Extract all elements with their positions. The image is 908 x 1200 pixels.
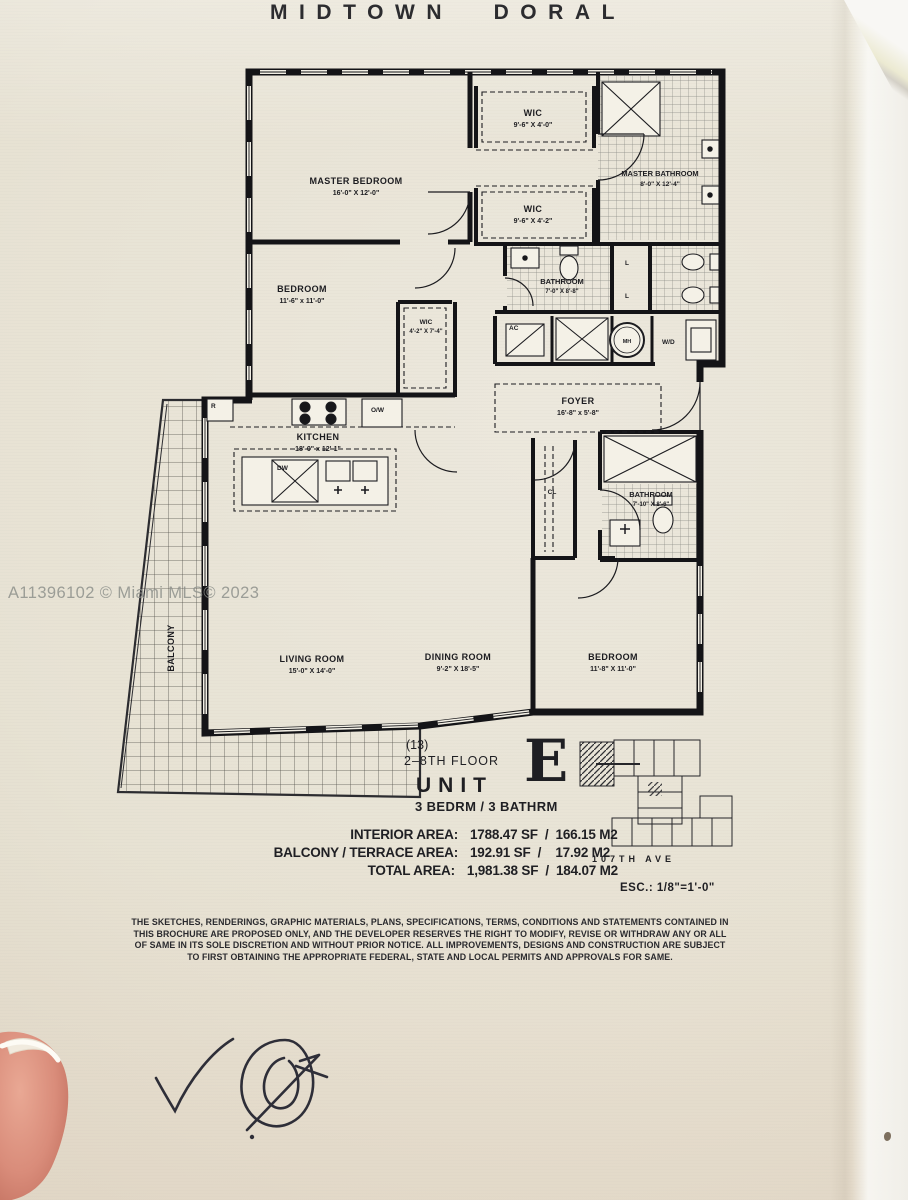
circled-signature [241,1040,313,1126]
label-wic2: WIC [524,204,543,214]
svg-text:7'-10" X 8'-6": 7'-10" X 8'-6" [633,502,670,508]
svg-text:9'-6" X 4'-2": 9'-6" X 4'-2" [514,218,553,225]
scale-note: ESC.: 1/8"=1'-0" [620,882,715,894]
label-oven: O/W [371,407,385,414]
disclaimer-line: THIS BROCHURE ARE PROPOSED ONLY, AND THE… [120,929,740,941]
label-wic3: WIC [420,319,433,326]
unit-label: UNIT [416,774,493,798]
label-linen2: L [625,293,629,300]
disclaimer-line: TO FIRST OBTAINING THE APPROPRIATE FEDER… [120,952,740,964]
label-bathroom3: BATHROOM [629,490,673,499]
photographed-floorplan-page: MIDTOWN DORAL [0,0,908,1200]
label-balcony: BALCONY [166,624,176,671]
thumb [0,1032,68,1200]
svg-text:7'-0" X 8'-8": 7'-0" X 8'-8" [545,289,578,295]
svg-text:18'-0" x 12'-1": 18'-0" x 12'-1" [295,446,341,453]
mls-watermark: A11396102 © Miami MLS© 2023 [8,584,259,603]
svg-text:16'-8" x 5'-8": 16'-8" x 5'-8" [557,410,599,417]
unit-letter: E [524,732,568,790]
label-kitchen: KITCHEN [297,432,340,442]
area-row-total: TOTAL AREA: 1,981.38 SF / 184.07 M2 [228,862,618,880]
svg-text:9'-2" X 18'-5": 9'-2" X 18'-5" [437,666,480,673]
svg-text:9'-6" X 4'-0": 9'-6" X 4'-0" [514,122,553,129]
floor-range: 2–8TH FLOOR [404,754,499,768]
floors-note: (13) [406,738,428,752]
svg-text:8'-0" X 12'-4": 8'-0" X 12'-4" [640,181,680,188]
label-master-bathroom: MASTER BATHROOM [621,169,698,178]
disclaimer-line: THE SKETCHES, RENDERINGS, GRAPHIC MATERI… [120,917,740,929]
label-bedroom3: BEDROOM [588,652,638,662]
disclaimer-line: OF SAME IN ITS SOLE DISCRETION AND WITHO… [120,940,740,952]
street-label: 107TH AVE [592,854,675,864]
label-living-room: LIVING ROOM [280,654,345,664]
label-fridge: R [211,403,216,410]
label-master-bedroom: MASTER BEDROOM [309,176,402,186]
area-row-balcony: BALCONY / TERRACE AREA: 192.91 SF / 17.9… [228,844,618,862]
label-closet: CL [548,489,557,496]
svg-text:16'-0" X 12'-0": 16'-0" X 12'-0" [333,190,380,197]
label-foyer: FOYER [561,396,594,406]
label-wic1: WIC [524,108,543,118]
checkmark [156,1039,233,1111]
svg-text:15'-0" X 14'-0": 15'-0" X 14'-0" [289,668,336,675]
svg-text:11'-6" x 11'-0": 11'-6" x 11'-0" [280,298,325,305]
area-row-interior: INTERIOR AREA: 1788.47 SF / 166.15 M2 [228,826,618,844]
tiled-floors [507,76,722,558]
handwritten-marks [156,1039,327,1139]
label-dining-room: DINING ROOM [425,652,491,662]
label-ac: AC [509,325,519,332]
label-bathroom2: BATHROOM [540,277,584,286]
label-washer-dryer: W/D [662,339,675,346]
label-linen1: L [625,260,629,267]
disclaimer: THE SKETCHES, RENDERINGS, GRAPHIC MATERI… [120,917,740,963]
svg-text:11'-8" X 11'-0": 11'-8" X 11'-0" [590,666,636,673]
label-dishwasher: DW [277,465,289,472]
unit-config: 3 BEDRM / 3 BATHRM [415,799,558,814]
svg-text:4'-2" X 7'-4": 4'-2" X 7'-4" [409,329,442,335]
area-table: INTERIOR AREA: 1788.47 SF / 166.15 M2 BA… [228,826,618,880]
label-bedroom2: BEDROOM [277,284,327,294]
label-mh: MH [623,339,632,345]
